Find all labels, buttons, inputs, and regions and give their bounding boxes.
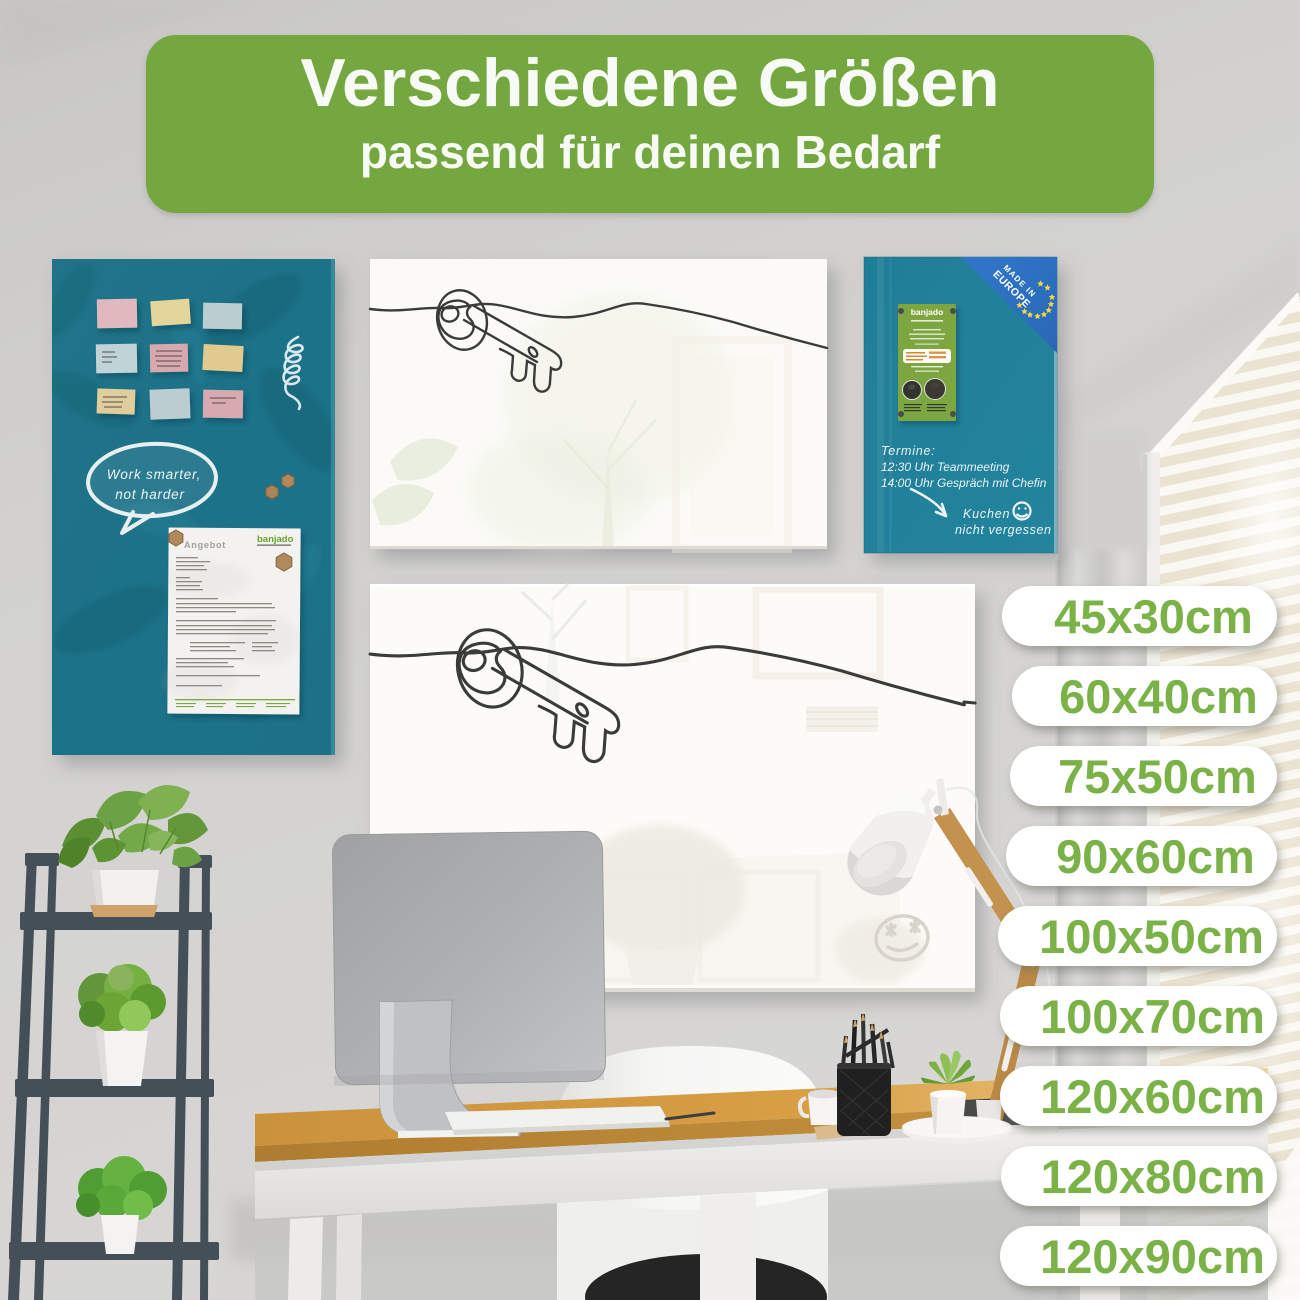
svg-text:nicht vergessen: nicht vergessen bbox=[955, 523, 1052, 537]
svg-text:Angebot: Angebot bbox=[184, 540, 226, 550]
svg-text:banjado: banjado bbox=[911, 307, 944, 317]
svg-text:banjado: banjado bbox=[257, 534, 294, 545]
svg-text:12:30 Uhr Teammeeting: 12:30 Uhr Teammeeting bbox=[881, 460, 1010, 474]
svg-text:Termine:: Termine: bbox=[881, 444, 936, 458]
svg-text:14:00 Uhr Gespräch mit Chefin: 14:00 Uhr Gespräch mit Chefin bbox=[881, 476, 1047, 490]
svg-text:Work smarter,: Work smarter, bbox=[107, 467, 201, 482]
svg-text:not harder: not harder bbox=[115, 487, 185, 502]
svg-text:Kuchen: Kuchen bbox=[963, 507, 1010, 521]
